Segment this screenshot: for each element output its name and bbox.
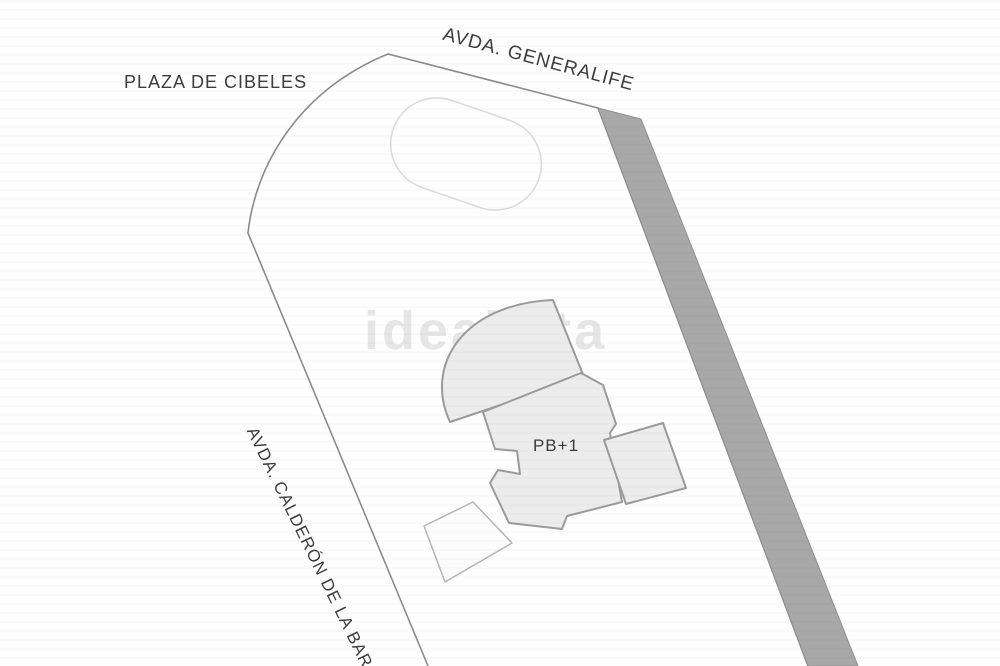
- street-label-cibeles: PLAZA DE CIBELES: [124, 72, 307, 93]
- site-plan-drawing: [0, 0, 1000, 666]
- white-square-outline: [424, 502, 512, 582]
- road-strip: [598, 108, 858, 666]
- site-plan-canvas: idealista AVDA. GENERALIFE PLAZA DE CIBE…: [0, 0, 1000, 666]
- pill-outline: [378, 85, 554, 222]
- building-storeys-label: PB+1: [521, 436, 591, 456]
